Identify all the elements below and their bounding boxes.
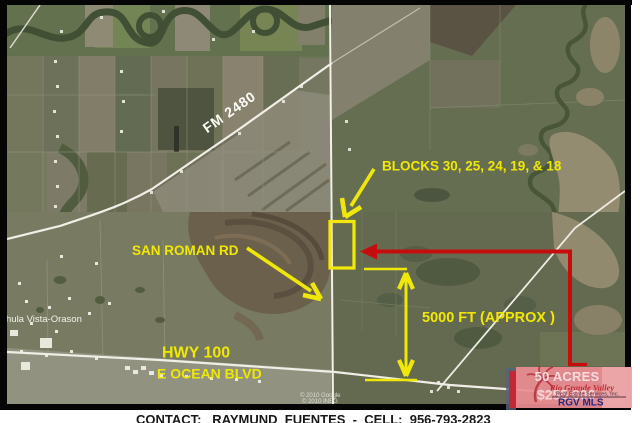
svg-text:hula Vista-Orason: hula Vista-Orason — [6, 314, 82, 325]
svg-text:E OCEAN BLVD: E OCEAN BLVD — [157, 366, 262, 382]
svg-text:© 2010 INEG: © 2010 INEG — [302, 398, 338, 405]
svg-text:HWY 100: HWY 100 — [162, 345, 230, 362]
svg-text:© 2010 Google: © 2010 Google — [300, 392, 341, 399]
svg-text:BLOCKS 30, 25, 24, 19, & 18: BLOCKS 30, 25, 24, 19, & 18 — [382, 159, 562, 174]
svg-text:SAN ROMAN RD: SAN ROMAN RD — [132, 243, 239, 258]
svg-text:5000 FT (APPROX ): 5000 FT (APPROX ) — [422, 310, 555, 326]
svg-text:RGV MLS: RGV MLS — [558, 398, 604, 409]
